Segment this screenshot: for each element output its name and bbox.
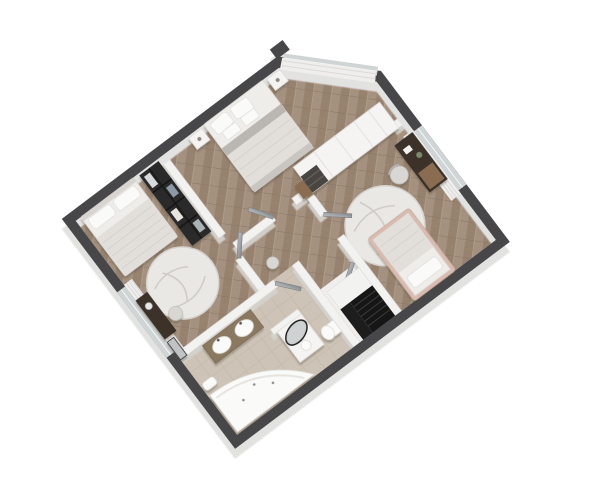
floorplan bbox=[56, 4, 510, 449]
floorplan-canvas bbox=[0, 0, 600, 500]
floorplan-stage bbox=[0, 0, 600, 500]
